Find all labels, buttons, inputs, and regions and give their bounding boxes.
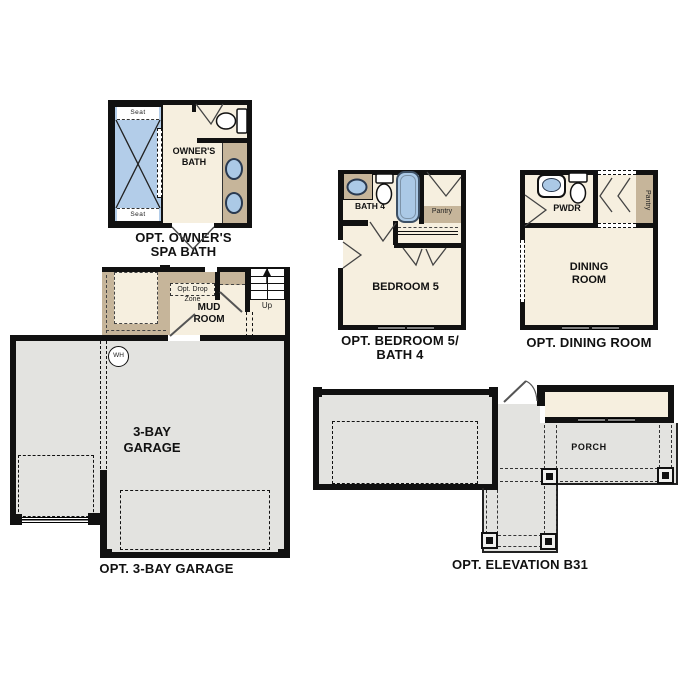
room-label-pwdr: PWDR xyxy=(545,203,589,215)
caption-bedroom5-bath4: OPT. BEDROOM 5/ BATH 4 xyxy=(325,334,475,364)
wall xyxy=(284,335,290,558)
wall xyxy=(520,325,658,330)
room-label-bedroom5: BEDROOM 5 xyxy=(353,281,458,294)
room-label-line: ROOM xyxy=(539,274,639,287)
room-label-mudroom: MUD ROOM xyxy=(178,302,240,326)
wall xyxy=(100,470,107,558)
shower-seat-bottom: Seat xyxy=(117,208,159,221)
room-label-porch: PORCH xyxy=(557,442,621,454)
porch-column-icon xyxy=(481,532,498,549)
porch-column-icon xyxy=(541,468,558,485)
wall xyxy=(214,223,252,228)
room-label-line: GARAGE xyxy=(92,440,212,456)
wall xyxy=(394,243,461,248)
wall xyxy=(285,267,290,340)
dashed-line xyxy=(106,330,166,331)
roof-dashed-line xyxy=(671,425,672,468)
pantry-label: Pantry xyxy=(639,178,651,222)
garage-door-icon xyxy=(20,517,90,523)
wall xyxy=(278,549,290,558)
column-core xyxy=(662,472,669,479)
wall xyxy=(540,385,674,392)
dining-floor xyxy=(525,175,653,325)
wall xyxy=(492,389,498,490)
shower-door-icon xyxy=(157,128,162,198)
window-icon xyxy=(608,418,635,422)
roof-dashed-line xyxy=(500,468,658,469)
wall xyxy=(313,484,498,490)
drop-zone-counter xyxy=(170,272,215,283)
wall xyxy=(247,100,252,228)
caption-line: SPA BATH xyxy=(106,245,261,259)
roof-dashed-line xyxy=(497,490,498,534)
porch-column-icon xyxy=(657,467,674,484)
room-label-line: ROOM xyxy=(178,314,240,326)
wall xyxy=(520,170,598,175)
closet-dashed-line xyxy=(398,227,458,228)
garage-door-dashed-area xyxy=(120,490,270,550)
shower-seat-top: Seat xyxy=(117,107,159,120)
caption-line: OPT. BEDROOM 5/ xyxy=(325,334,475,348)
column-core xyxy=(546,473,553,480)
wall xyxy=(313,389,498,395)
roof-dashed-line xyxy=(556,486,557,534)
porch-column-icon xyxy=(540,533,557,550)
closet-shelf xyxy=(220,272,245,285)
room-label-line: BATH xyxy=(164,157,224,168)
dashed-line xyxy=(106,275,107,333)
room-label-line: 3-BAY xyxy=(92,424,212,440)
caption-elevation-b31: OPT. ELEVATION B31 xyxy=(420,558,620,574)
porch-floor xyxy=(498,423,678,485)
stairs xyxy=(250,268,285,300)
wall xyxy=(313,389,319,490)
porch-edge xyxy=(482,551,558,553)
porch-edge xyxy=(676,423,678,485)
water-heater-icon: WH xyxy=(108,346,129,367)
roof-dashed-line xyxy=(544,486,545,534)
interior-floor xyxy=(545,392,668,417)
window-icon xyxy=(378,326,405,330)
pantry-label: Pantry xyxy=(424,208,460,220)
closet-rod xyxy=(398,231,458,235)
wall xyxy=(461,170,466,330)
wall xyxy=(10,335,290,341)
garage-door-dashed-area xyxy=(18,455,94,517)
caption-line: BATH 4 xyxy=(325,348,475,362)
wall xyxy=(100,549,112,558)
room-label-owners-bath: OWNER'S BATH xyxy=(164,146,224,176)
wall xyxy=(108,223,172,228)
roof-dashed-line xyxy=(486,490,487,534)
cased-opening xyxy=(598,223,636,228)
caption-owners-spa-bath: OPT. OWNER'S SPA BATH xyxy=(106,231,261,259)
stair-divider xyxy=(267,269,268,299)
roof-dashed-line xyxy=(500,481,658,482)
room-label-line: OWNER'S xyxy=(164,146,224,157)
door-opening xyxy=(338,240,343,268)
window-icon xyxy=(562,326,589,330)
wall xyxy=(100,552,290,558)
entry-door-icon xyxy=(504,381,537,402)
cased-opening xyxy=(520,240,525,302)
vanity-counter xyxy=(222,143,247,223)
room-label-line: MUD xyxy=(178,302,240,314)
roof-dashed-line xyxy=(498,546,542,547)
wall xyxy=(520,223,598,228)
caption-line: OPT. OWNER'S xyxy=(106,231,261,245)
roof-dashed-line xyxy=(544,425,545,469)
door-opening xyxy=(168,335,200,341)
window-icon xyxy=(592,326,619,330)
wall xyxy=(338,220,368,226)
wall xyxy=(636,223,658,228)
floor-plan-options-sheet: Seat Seat OWNER'S BATH OPT. OWNER'S SPA … xyxy=(0,0,687,687)
room-label-dining: DINING ROOM xyxy=(539,261,639,289)
stairs-up-label: Up xyxy=(252,301,282,311)
column-core xyxy=(486,537,493,544)
roof-dashed-line xyxy=(659,425,660,468)
room-label-bath4: BATH 4 xyxy=(348,201,392,213)
room-label-line: DINING xyxy=(539,261,639,274)
cased-opening xyxy=(246,312,253,337)
garage-door-dashed-area xyxy=(332,421,478,484)
wall xyxy=(593,170,598,228)
drop-zone-label: Opt. Drop xyxy=(170,283,215,296)
opt-counter-inner xyxy=(114,272,158,324)
caption-dining-room: OPT. DINING ROOM xyxy=(509,336,669,352)
room-label-garage: 3-BAY GARAGE xyxy=(92,424,212,456)
column-core xyxy=(545,538,552,545)
shower xyxy=(113,105,163,223)
window-icon xyxy=(407,326,434,330)
cased-opening xyxy=(598,170,636,175)
wall xyxy=(653,170,658,330)
window-icon xyxy=(578,418,605,422)
roof-dashed-line xyxy=(498,535,542,536)
bath4-sink-counter xyxy=(343,173,373,200)
caption-garage: OPT. 3-BAY GARAGE xyxy=(74,562,259,578)
wall xyxy=(10,335,16,523)
wall xyxy=(192,100,196,112)
